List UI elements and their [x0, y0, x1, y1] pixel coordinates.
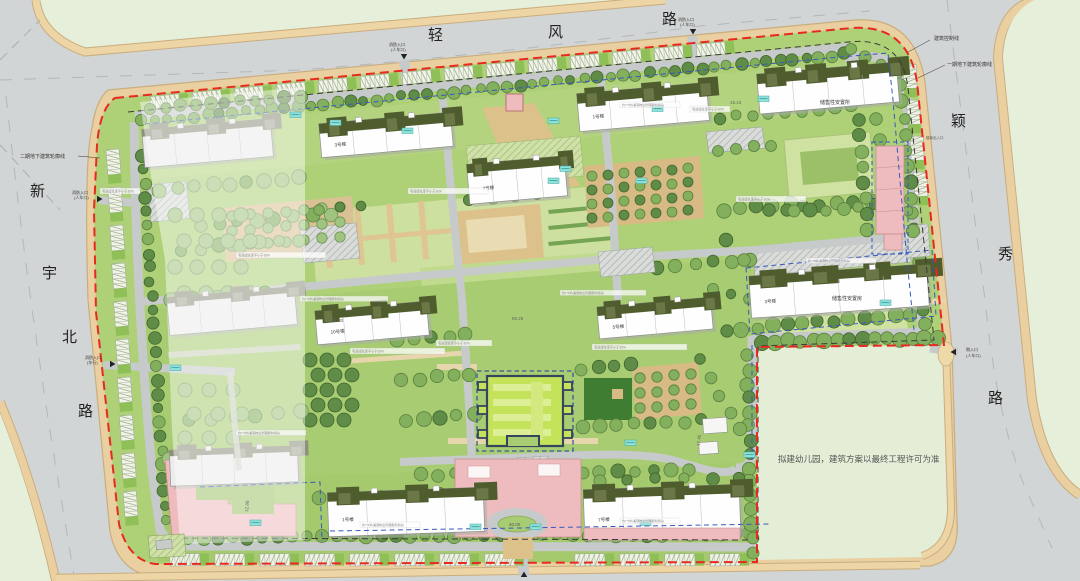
svg-text:北: 北 [62, 329, 77, 346]
svg-text:路: 路 [988, 390, 1003, 407]
svg-text:路: 路 [662, 11, 677, 28]
svg-text:宅间绿化率不小于30%: 宅间绿化率不小于30% [102, 189, 134, 194]
svg-text:路: 路 [78, 403, 93, 420]
svg-text:(人车口): (人车口) [391, 46, 406, 52]
svg-text:51.30: 51.30 [332, 318, 344, 323]
svg-text:宅间绿化率不小于30%: 宅间绿化率不小于30% [410, 189, 442, 194]
svg-text:40.00: 40.00 [509, 522, 521, 527]
svg-text:侧入口: 侧入口 [966, 346, 978, 352]
svg-text:(人车口): (人车口) [680, 21, 695, 27]
svg-text:宇: 宇 [42, 265, 57, 282]
svg-text:轻: 轻 [428, 27, 443, 44]
svg-text:17.45: 17.45 [696, 434, 702, 446]
svg-text:宅间绿化率不小于30%: 宅间绿化率不小于30% [594, 345, 626, 350]
svg-text:一期地下建筑轮廓线: 一期地下建筑轮廓线 [947, 61, 992, 68]
svg-text:宅间绿化率不小于30%: 宅间绿化率不小于30% [238, 253, 270, 258]
svg-text:(车行): (车行) [87, 359, 98, 365]
svg-text:12.80: 12.80 [244, 500, 250, 512]
svg-text:楼库出入口: 楼库出入口 [926, 135, 944, 140]
svg-text:宅间绿化率不小于30%: 宅间绿化率不小于30% [738, 197, 770, 202]
svg-text:约7.5米(兼容物业管理服务用房): 约7.5米(兼容物业管理服务用房) [302, 296, 344, 301]
svg-text:约7.5米(兼容物业管理服务用房): 约7.5米(兼容物业管理服务用房) [238, 430, 280, 435]
svg-text:风: 风 [548, 24, 563, 41]
svg-text:约7.5米(兼容物业管理服务用房): 约7.5米(兼容物业管理服务用房) [622, 518, 664, 523]
svg-text:(人车口): (人车口) [966, 352, 981, 358]
svg-text:宅间绿化率不小于30%: 宅间绿化率不小于30% [352, 349, 384, 354]
svg-text:新: 新 [30, 183, 45, 200]
svg-text:颖: 颖 [951, 113, 966, 130]
svg-text:85.25: 85.25 [512, 316, 524, 321]
svg-text:储售性安置所: 储售性安置所 [820, 99, 850, 106]
svg-text:宅间绿化率不小于30%: 宅间绿化率不小于30% [692, 107, 724, 112]
svg-text:约7.5米(兼容物业管理服务用房): 约7.5米(兼容物业管理服务用房) [562, 290, 604, 295]
svg-text:(人车口): (人车口) [74, 194, 89, 200]
svg-text:约7.5米(兼容物业管理服务用房): 约7.5米(兼容物业管理服务用房) [808, 258, 850, 263]
svg-text:约7.5米(兼容物业管理服务用房): 约7.5米(兼容物业管理服务用房) [362, 522, 404, 527]
svg-text:15.43: 15.43 [730, 100, 742, 105]
svg-text:储售性安置房: 储售性安置房 [832, 295, 862, 302]
svg-text:秀: 秀 [998, 246, 1013, 263]
svg-text:拟建幼儿园，建筑方案以最终工程许可为准: 拟建幼儿园，建筑方案以最终工程许可为准 [778, 454, 940, 464]
svg-text:宅间绿化率不小于30%: 宅间绿化率不小于30% [438, 341, 470, 346]
svg-text:二期地下建筑轮廓线: 二期地下建筑轮廓线 [20, 153, 65, 160]
svg-text:约7.5米(兼容物业管理服务用房): 约7.5米(兼容物业管理服务用房) [622, 102, 664, 107]
svg-text:建筑控制线: 建筑控制线 [934, 35, 959, 42]
